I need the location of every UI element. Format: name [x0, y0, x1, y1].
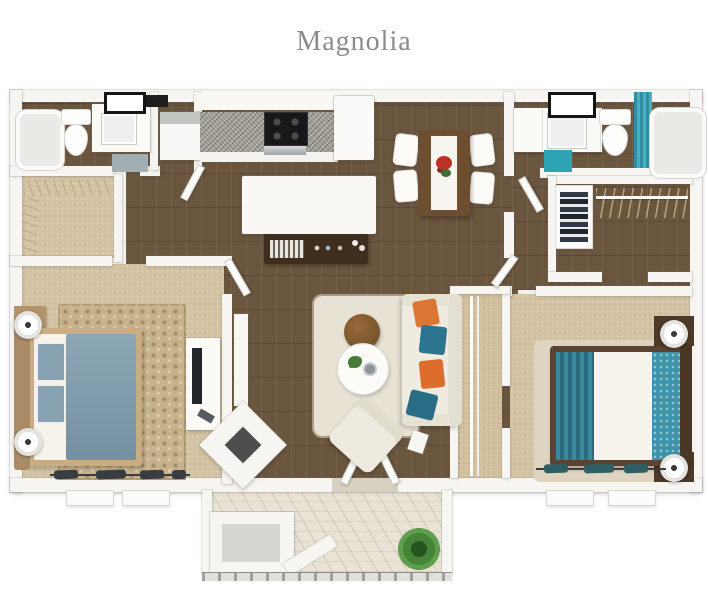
- sink-right: [548, 114, 586, 148]
- sofa-pillow-orange: [419, 359, 446, 389]
- sofa-backrest: [448, 294, 462, 426]
- console-bottles: [352, 240, 358, 246]
- wall-closet-strip-east-2: [502, 428, 510, 478]
- bed-right-duvet: [594, 352, 654, 460]
- patio-railing: [202, 572, 452, 581]
- sofa-pillow-orange: [412, 298, 440, 328]
- wall-dining-bath-divider: [504, 92, 514, 176]
- stove-front: [264, 146, 306, 155]
- laundry-shelf: [146, 95, 168, 107]
- bed-left-blue-duvet: [66, 334, 136, 460]
- bed-right-teal-blanket: [556, 352, 594, 460]
- curtain-dark: [96, 469, 126, 479]
- curtain-teal: [584, 463, 614, 473]
- stove: [264, 112, 308, 146]
- floor-plan-page: Magnolia: [0, 0, 708, 612]
- wall-dining-bath-divider-2: [504, 212, 514, 258]
- page-title: Magnolia: [0, 26, 708, 58]
- teal-bath-mat: [544, 150, 572, 172]
- bathtub-left: [16, 110, 64, 170]
- tv-left: [192, 348, 202, 404]
- closet-hangers-left-top: [24, 180, 112, 196]
- sink-left: [102, 114, 136, 144]
- toilet-left-tank: [62, 110, 90, 124]
- bed-left-pillow: [36, 342, 66, 382]
- wall-bedroom-left-north: [10, 256, 112, 266]
- window-bedroom-right-2: [608, 490, 656, 506]
- curtain-dark: [172, 470, 186, 479]
- bedroom-right-closet-interior: [458, 294, 502, 478]
- folded-clothes: [560, 192, 588, 242]
- wall-closet-right-west: [548, 176, 556, 280]
- bed-left-pillow: [36, 384, 66, 424]
- curtain-teal: [544, 464, 568, 474]
- dining-chair: [392, 133, 420, 168]
- wall-bedroom-right-north-2: [536, 286, 692, 296]
- closet-hangers-right: [596, 188, 688, 218]
- dining-chair: [393, 169, 420, 203]
- curtain-teal: [624, 464, 648, 474]
- coffee-table-decor: [362, 362, 378, 378]
- bed-right-teal-pillows: [652, 352, 680, 460]
- wall-closet-strip-north: [450, 286, 510, 294]
- closet-strip-rod-2: [477, 296, 479, 476]
- refrigerator: [334, 96, 374, 160]
- bath-left-floor-mat: [112, 154, 148, 172]
- wall-closet-right-south-2: [648, 272, 692, 282]
- window-bedroom-right-1: [546, 490, 594, 506]
- dining-chair: [469, 171, 496, 205]
- washer-dryer: [160, 112, 200, 160]
- kitchen-peninsula-counter: [242, 176, 376, 234]
- console-decor: [312, 243, 348, 253]
- living-console-table: [234, 314, 248, 406]
- closet-rod-right: [596, 196, 688, 199]
- lamp-right-1: [660, 320, 688, 348]
- wall-patio-right: [442, 490, 452, 574]
- curtain-dark: [54, 470, 78, 480]
- lamp-left-2: [14, 428, 42, 456]
- wall-closet-right-south-1: [548, 272, 602, 282]
- kitchen-upper-cabinets: [198, 92, 338, 110]
- patio-storage-interior: [222, 524, 280, 562]
- closet-strip-rod-1: [470, 296, 473, 476]
- closet-hangers-left-side: [22, 198, 38, 256]
- dining-table-runner: [431, 136, 457, 210]
- potted-plant: [396, 526, 442, 572]
- curtain-dark: [140, 470, 164, 480]
- console-books: [270, 240, 304, 258]
- floral-centerpiece: [436, 156, 452, 170]
- wall-closet-left-east: [114, 174, 122, 262]
- bed-right-headboard: [680, 344, 692, 468]
- sofa-pillow-teal: [419, 325, 448, 356]
- dining-chair: [468, 133, 496, 168]
- window-bedroom-left-1: [66, 490, 114, 506]
- wall-closet-strip-east-1: [502, 286, 510, 386]
- mirror-right: [548, 92, 596, 118]
- lamp-left-1: [14, 311, 42, 339]
- mirror-left: [104, 92, 146, 114]
- window-bedroom-left-2: [122, 490, 170, 506]
- wall-bedroom-left-north-2: [146, 256, 232, 266]
- bathtub-right: [650, 108, 706, 178]
- toilet-right-tank: [600, 110, 630, 124]
